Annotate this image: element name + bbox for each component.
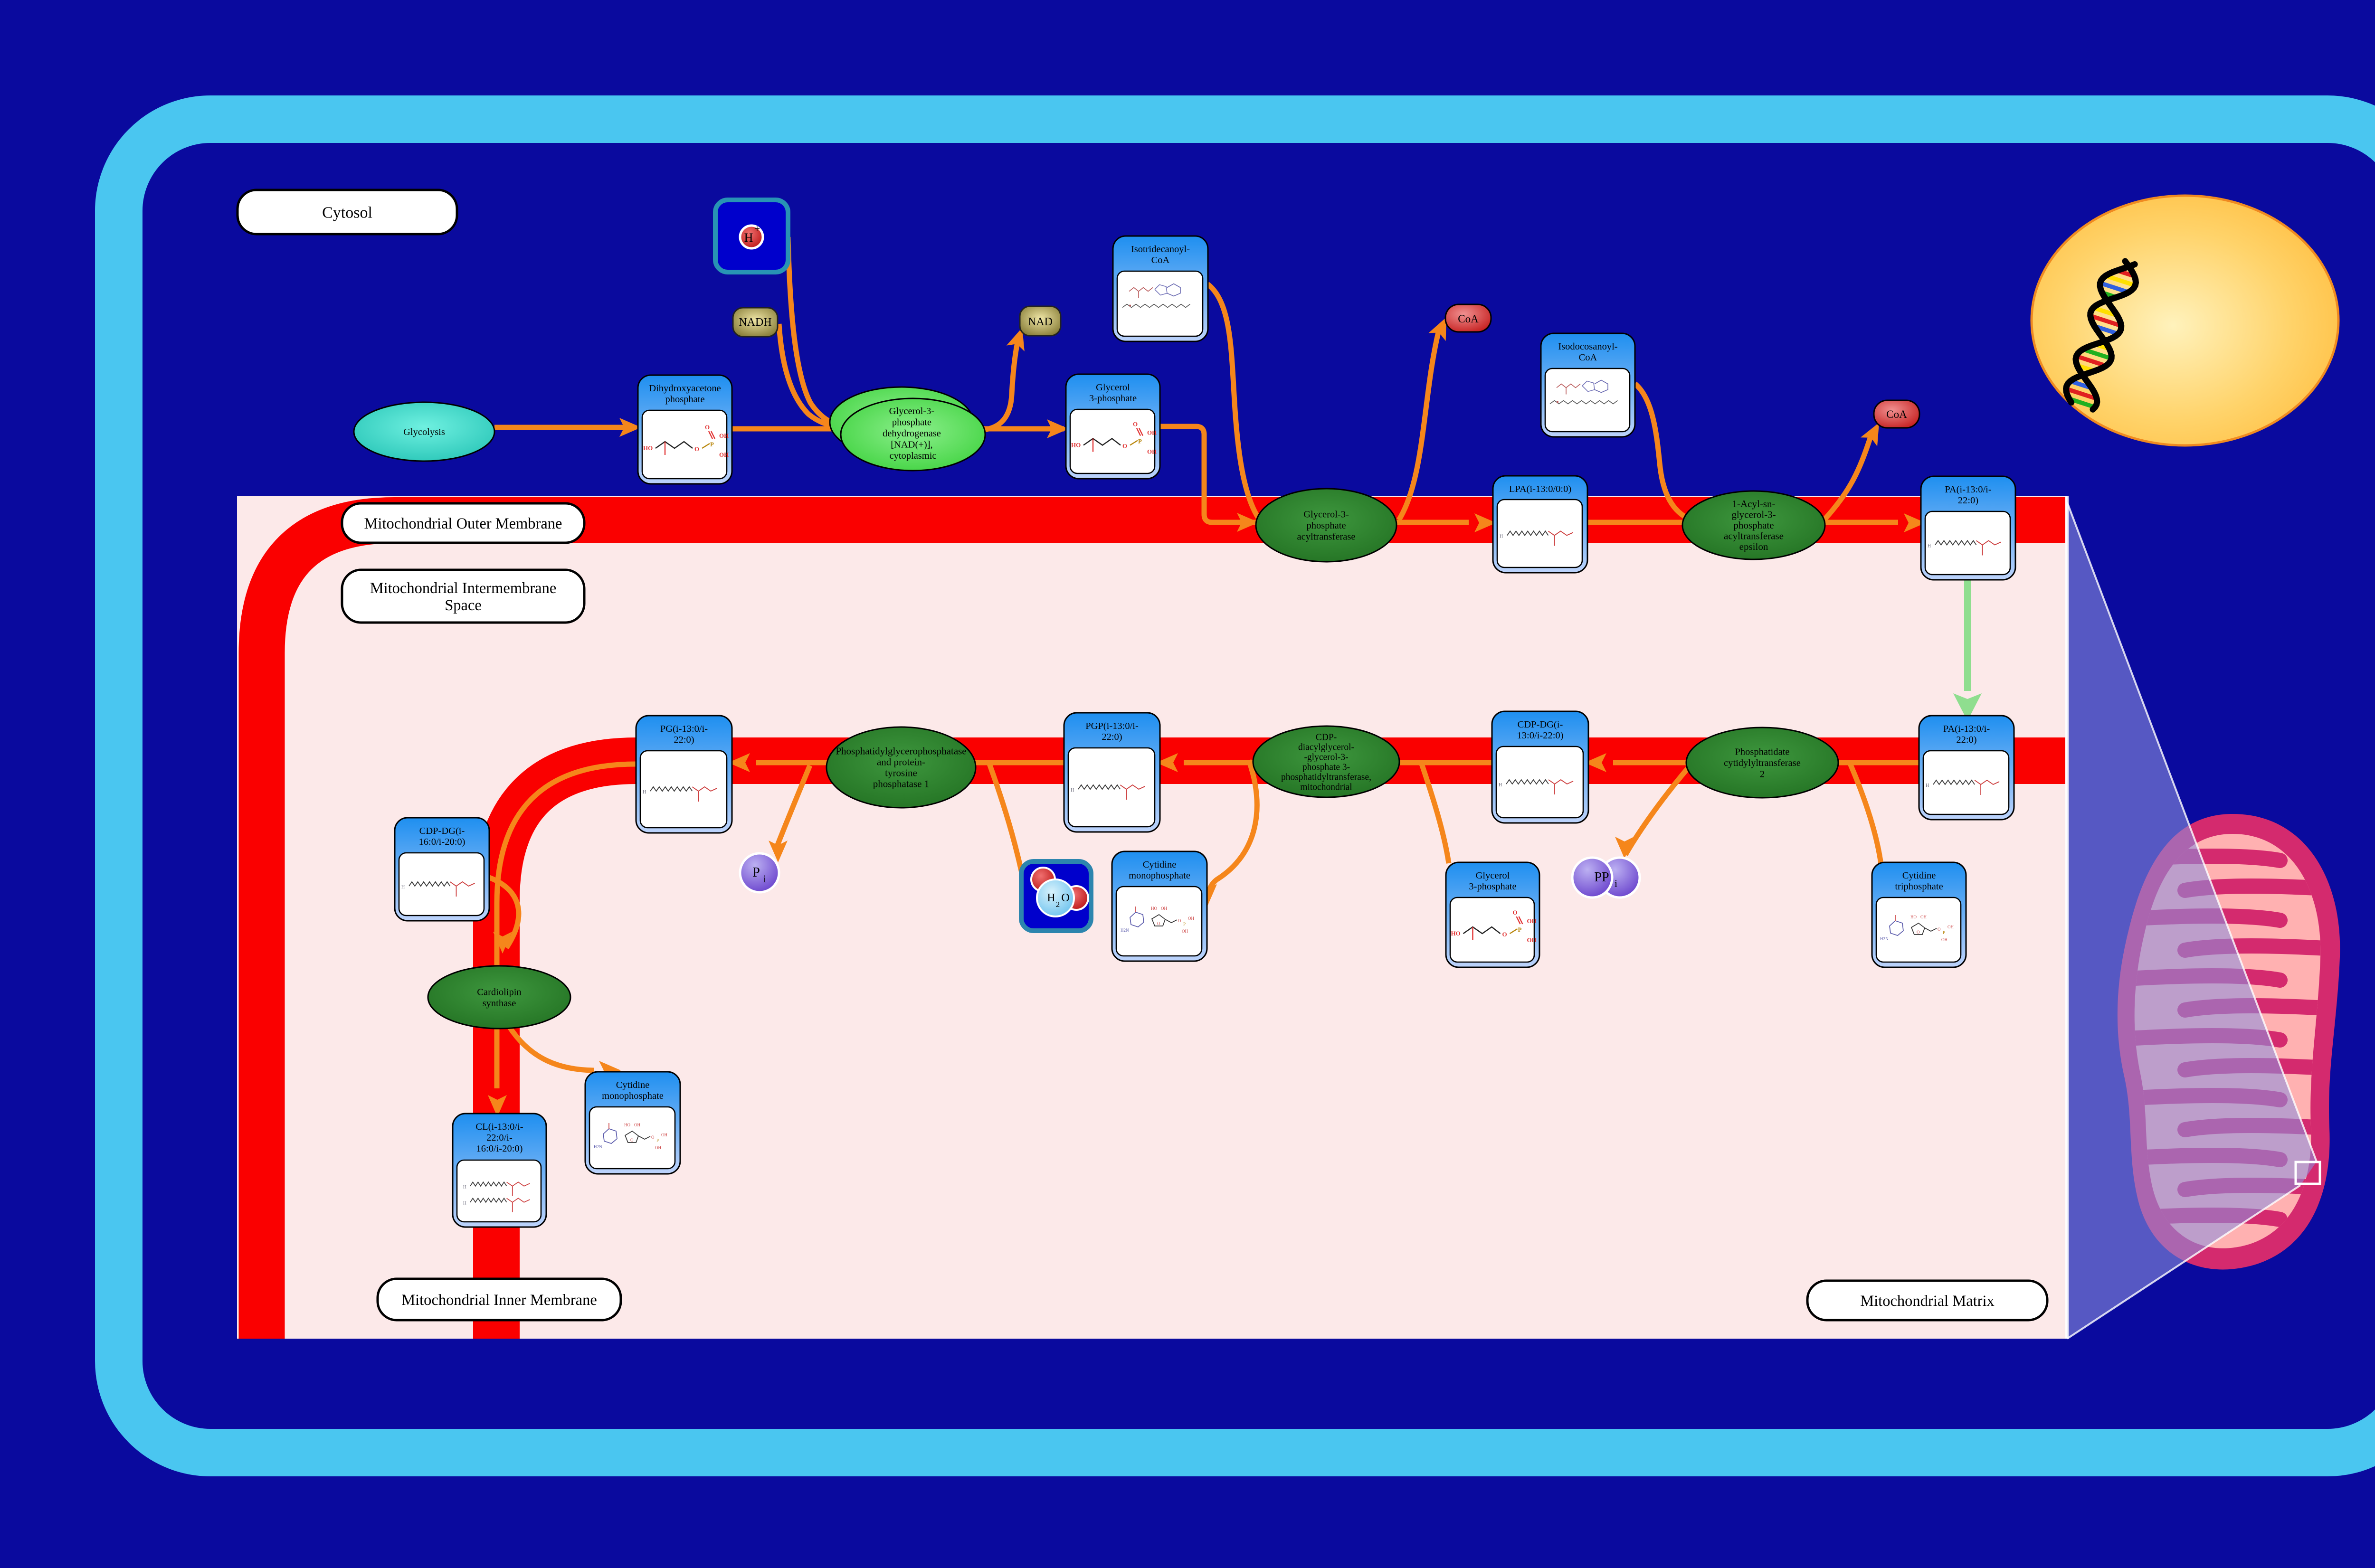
svg-text:Cytosol: Cytosol xyxy=(322,204,372,221)
svg-text:P: P xyxy=(710,441,714,448)
svg-text:H: H xyxy=(1499,783,1502,788)
svg-text:i: i xyxy=(763,873,766,885)
svg-text:OH: OH xyxy=(661,1133,667,1137)
svg-text:O: O xyxy=(1133,421,1138,428)
svg-text:HO: HO xyxy=(1451,930,1461,937)
svg-text:NAD: NAD xyxy=(1028,316,1053,328)
svg-text:O: O xyxy=(651,1135,655,1140)
svg-text:HO: HO xyxy=(1910,915,1917,919)
svg-text:P: P xyxy=(1183,922,1186,926)
svg-text:O: O xyxy=(1122,443,1127,450)
svg-text:P: P xyxy=(752,865,760,880)
svg-text:O: O xyxy=(1178,918,1181,923)
svg-text:H2N: H2N xyxy=(594,1144,602,1149)
svg-text:Cardiolipinsynthase: Cardiolipinsynthase xyxy=(477,987,521,1009)
svg-text:OH: OH xyxy=(1161,906,1167,911)
svg-text:O: O xyxy=(630,1138,634,1143)
svg-text:P: P xyxy=(1138,438,1142,445)
svg-text:P: P xyxy=(1518,926,1522,933)
svg-text:OH: OH xyxy=(634,1123,640,1127)
svg-text:H: H xyxy=(744,231,753,245)
svg-text:OH: OH xyxy=(1527,917,1537,925)
svg-text:Mitochondrial Matrix: Mitochondrial Matrix xyxy=(1860,1293,1995,1310)
svg-text:OH: OH xyxy=(655,1145,661,1150)
svg-text:H2N: H2N xyxy=(1121,928,1129,933)
svg-text:OH: OH xyxy=(1188,916,1194,921)
svg-text:P: P xyxy=(656,1138,659,1143)
svg-text:H: H xyxy=(1928,544,1931,549)
svg-text:OH: OH xyxy=(1147,429,1157,436)
svg-text:H: H xyxy=(1071,788,1074,793)
svg-text:HO: HO xyxy=(624,1123,630,1127)
svg-text:HO: HO xyxy=(643,444,653,452)
svg-text:O: O xyxy=(1502,931,1507,938)
svg-text:P: P xyxy=(1943,930,1945,935)
svg-text:O: O xyxy=(1157,921,1160,926)
svg-text:HO: HO xyxy=(1071,442,1081,449)
svg-text:CDP-DG(i-16:0/i-20:0): CDP-DG(i-16:0/i-20:0) xyxy=(419,826,465,847)
svg-text:OH: OH xyxy=(719,432,729,439)
svg-text:O: O xyxy=(1938,927,1941,932)
svg-text:H: H xyxy=(1500,534,1503,539)
svg-text:O: O xyxy=(705,424,710,431)
svg-text:O: O xyxy=(1061,892,1069,904)
svg-text:O: O xyxy=(1917,930,1920,935)
svg-text:O: O xyxy=(1513,909,1518,916)
svg-text:+: + xyxy=(754,223,760,235)
svg-text:i: i xyxy=(1615,878,1617,889)
svg-text:CoA: CoA xyxy=(1458,313,1479,325)
svg-text:OH: OH xyxy=(1527,936,1537,944)
svg-text:H: H xyxy=(463,1201,466,1206)
svg-text:H: H xyxy=(1047,892,1055,904)
svg-text:OH: OH xyxy=(1920,915,1927,919)
svg-text:PP: PP xyxy=(1594,870,1609,885)
svg-text:Glycerol-3- phosphate dehydrog: Glycerol-3- phosphate dehydrogenase [NAD… xyxy=(883,406,943,461)
svg-text:H: H xyxy=(463,1185,466,1190)
svg-text:CDP-DG(i-13:0/i-22:0): CDP-DG(i-13:0/i-22:0) xyxy=(1517,719,1564,741)
svg-text:Glycolysis: Glycolysis xyxy=(403,427,445,437)
svg-text:OH: OH xyxy=(1947,925,1954,929)
svg-text:2: 2 xyxy=(1056,900,1060,909)
svg-text:LPA(i-13:0/0:0): LPA(i-13:0/0:0) xyxy=(1509,484,1571,494)
svg-text:Mitochondrial Inner Membrane: Mitochondrial Inner Membrane xyxy=(401,1292,597,1309)
svg-text:Glycerol3-phosphate: Glycerol3-phosphate xyxy=(1469,870,1516,892)
svg-text:H: H xyxy=(1926,783,1929,788)
svg-text:OH: OH xyxy=(1941,937,1947,942)
svg-text:H2N: H2N xyxy=(1880,936,1889,941)
svg-text:OH: OH xyxy=(719,451,729,458)
svg-text:CoA: CoA xyxy=(1886,408,1907,420)
svg-text:H: H xyxy=(401,885,405,890)
svg-text:HO: HO xyxy=(1151,906,1157,911)
svg-text:O: O xyxy=(694,445,699,453)
svg-text:OH: OH xyxy=(1147,448,1157,455)
svg-text:H: H xyxy=(643,790,646,795)
svg-text:Glycerol3-phosphate: Glycerol3-phosphate xyxy=(1089,382,1137,404)
svg-text:NADH: NADH xyxy=(739,316,771,329)
svg-text:Mitochondrial Outer Membrane: Mitochondrial Outer Membrane xyxy=(364,515,562,532)
svg-text:OH: OH xyxy=(1182,929,1188,934)
